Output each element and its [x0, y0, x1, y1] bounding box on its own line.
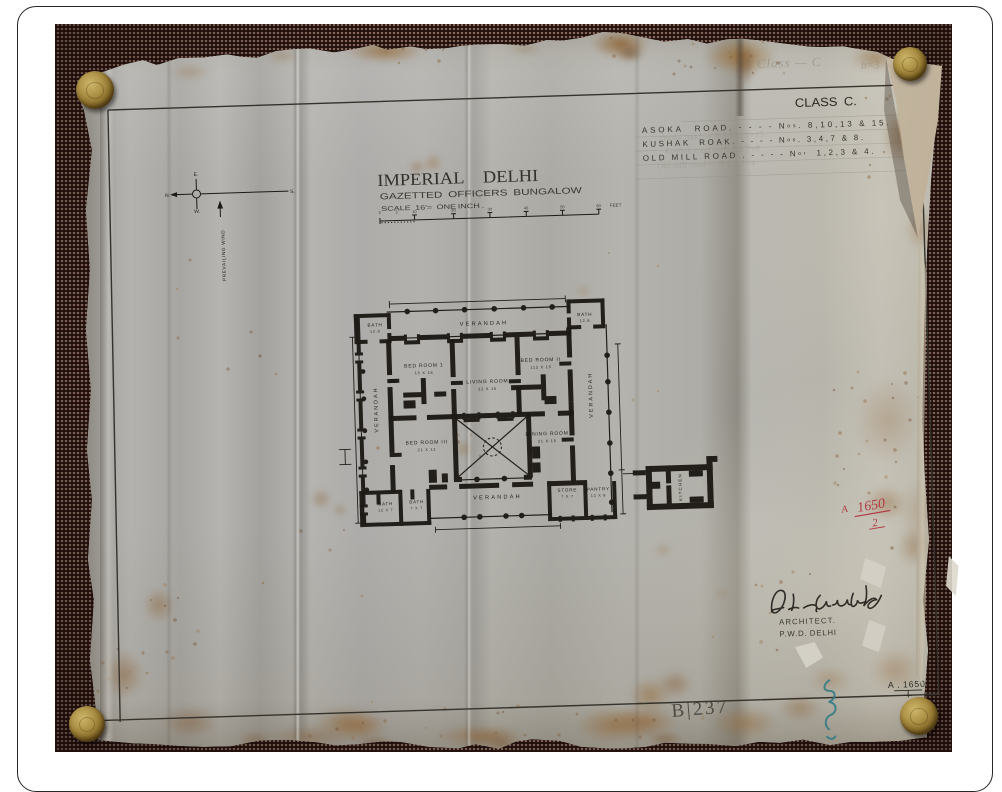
svg-text:12 X 7: 12 X 7: [378, 508, 393, 512]
svg-text:N.: N.: [165, 193, 170, 199]
svg-text:BATH: BATH: [367, 322, 382, 327]
svg-text:12.8: 12.8: [580, 319, 591, 323]
svg-text:VERANDAH: VERANDAH: [588, 372, 595, 418]
svg-text:Class — C: Class — C: [757, 54, 822, 71]
svg-text:B|237: B|237: [671, 696, 730, 722]
svg-text:BED ROOM III: BED ROOM III: [405, 439, 448, 446]
svg-text:VERANDAH: VERANDAH: [373, 386, 380, 432]
svg-text:KITCHEN: KITCHEN: [677, 473, 683, 501]
svg-text:b=3: b=3: [861, 59, 880, 72]
svg-text:S.: S.: [290, 189, 295, 195]
svg-text:15 X 18: 15 X 18: [415, 371, 434, 376]
svg-text:BATH: BATH: [378, 501, 393, 506]
svg-text:DINING ROOM: DINING ROOM: [525, 431, 568, 438]
svg-text:BATH: BATH: [577, 312, 592, 317]
svg-text:40: 40: [524, 205, 529, 210]
svg-text:7 X 7: 7 X 7: [561, 494, 574, 498]
svg-text:VERANDAH: VERANDAH: [473, 494, 522, 502]
svg-text:ARCHITECT.: ARCHITECT.: [779, 616, 836, 627]
svg-text:W.: W.: [194, 209, 200, 215]
svg-text:12.8: 12.8: [370, 329, 381, 333]
svg-text:A: A: [840, 504, 850, 516]
svg-text:1650: 1650: [856, 496, 886, 516]
svg-text:BED ROOM II: BED ROOM II: [521, 357, 561, 364]
svg-text:STORE: STORE: [557, 487, 577, 493]
svg-text:Old mill road — N 1.2.3+4: Old mill road — N 1.2.3+4: [657, 157, 756, 170]
svg-text:112 X 15: 112 X 15: [530, 365, 551, 370]
svg-text:Kushak road — N 3.4.7+8: Kushak road — N 3.4.7+8: [663, 143, 760, 156]
svg-text:VERANDAH: VERANDAH: [460, 320, 509, 328]
svg-text:BED ROOM 1: BED ROOM 1: [404, 362, 444, 369]
svg-text:PANTRY: PANTRY: [587, 486, 610, 492]
svg-text:50: 50: [560, 204, 565, 209]
svg-text:60: 60: [596, 203, 601, 208]
svg-text:CLASS C.: CLASS C.: [795, 94, 857, 110]
svg-text:21 X 15: 21 X 15: [538, 439, 557, 444]
svg-text:30: 30: [487, 206, 492, 211]
svg-text:LIVING ROOM: LIVING ROOM: [466, 378, 508, 385]
svg-text:PREVAILING WIND: PREVAILING WIND: [220, 230, 227, 281]
svg-text:FEET: FEET: [610, 202, 622, 207]
svg-text:7 X 7: 7 X 7: [411, 506, 424, 510]
svg-text:A . 1650.: A . 1650.: [888, 679, 929, 690]
svg-text:22 X 15: 22 X 15: [478, 387, 497, 392]
svg-text:E.: E.: [193, 172, 198, 178]
svg-text:BATH: BATH: [409, 499, 424, 504]
svg-text:21 X 12: 21 X 12: [418, 448, 437, 453]
svg-text:P.W.D. DELHI: P.W.D. DELHI: [779, 628, 837, 639]
svg-text:12 X 8: 12 X 8: [591, 493, 606, 497]
